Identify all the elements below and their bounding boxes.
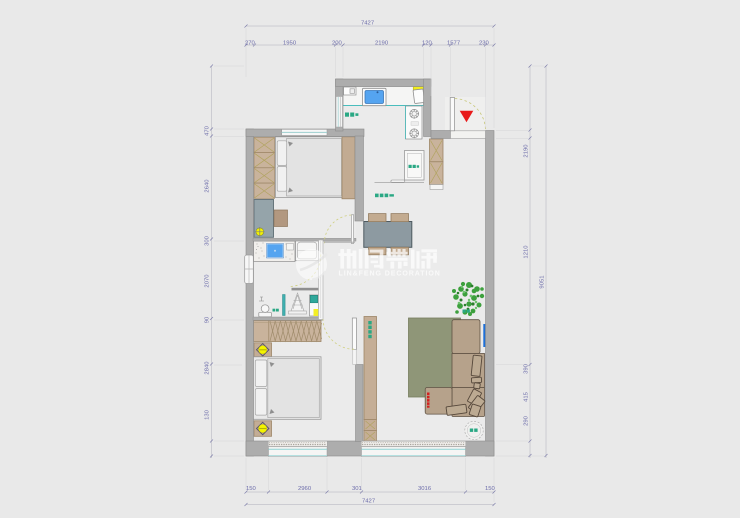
svg-text:LIN&FENG DECORATION: LIN&FENG DECORATION	[339, 270, 441, 277]
svg-text:1950: 1950	[283, 41, 297, 47]
svg-text:150: 150	[485, 486, 496, 492]
svg-text:3016: 3016	[418, 486, 432, 492]
svg-text:230: 230	[479, 41, 490, 47]
svg-text:90: 90	[205, 316, 211, 323]
svg-text:7427: 7427	[362, 499, 375, 505]
svg-text:120: 120	[422, 41, 433, 47]
svg-text:130: 130	[205, 409, 211, 420]
svg-text:270: 270	[245, 41, 256, 47]
svg-text:9051: 9051	[540, 275, 546, 288]
svg-text:7427: 7427	[361, 21, 374, 27]
svg-text:1210: 1210	[524, 245, 530, 259]
svg-text:2190: 2190	[524, 144, 530, 158]
svg-text:470: 470	[205, 125, 211, 136]
svg-text:301: 301	[352, 486, 362, 492]
svg-text:2840: 2840	[205, 361, 211, 375]
svg-text:300: 300	[205, 235, 211, 246]
svg-text:2960: 2960	[298, 486, 312, 492]
svg-text:2070: 2070	[205, 274, 211, 288]
svg-text:1577: 1577	[447, 41, 460, 47]
svg-text:200: 200	[332, 41, 343, 47]
svg-text:2190: 2190	[375, 41, 389, 47]
svg-text:390: 390	[524, 363, 530, 374]
svg-text:415: 415	[524, 391, 530, 402]
svg-text:150: 150	[246, 486, 257, 492]
svg-text:290: 290	[524, 415, 530, 426]
svg-text:2640: 2640	[205, 179, 211, 193]
